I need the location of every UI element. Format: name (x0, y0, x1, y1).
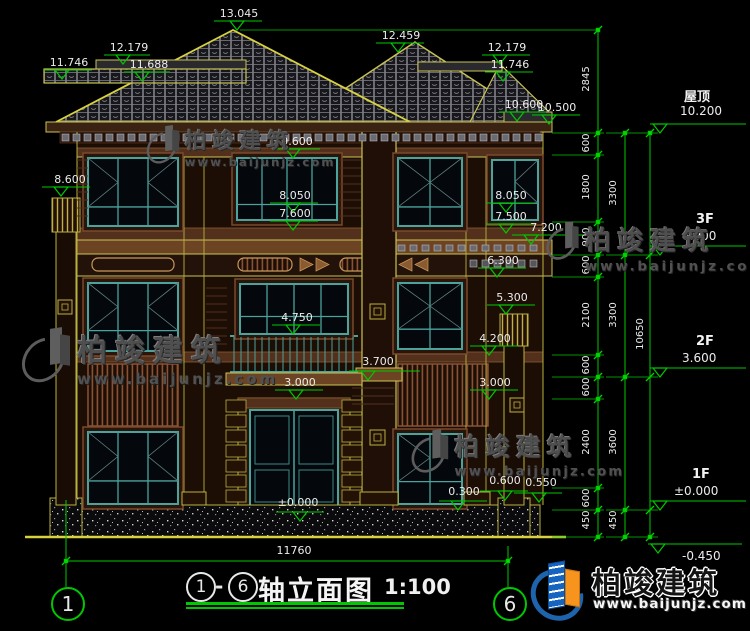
cad-elevation-sheet: 13.045 12.459 12.179 11.746 11.688 12.17… (0, 0, 750, 631)
entry-door (238, 398, 350, 520)
roof (44, 30, 552, 122)
elevation-drawing (0, 0, 750, 631)
